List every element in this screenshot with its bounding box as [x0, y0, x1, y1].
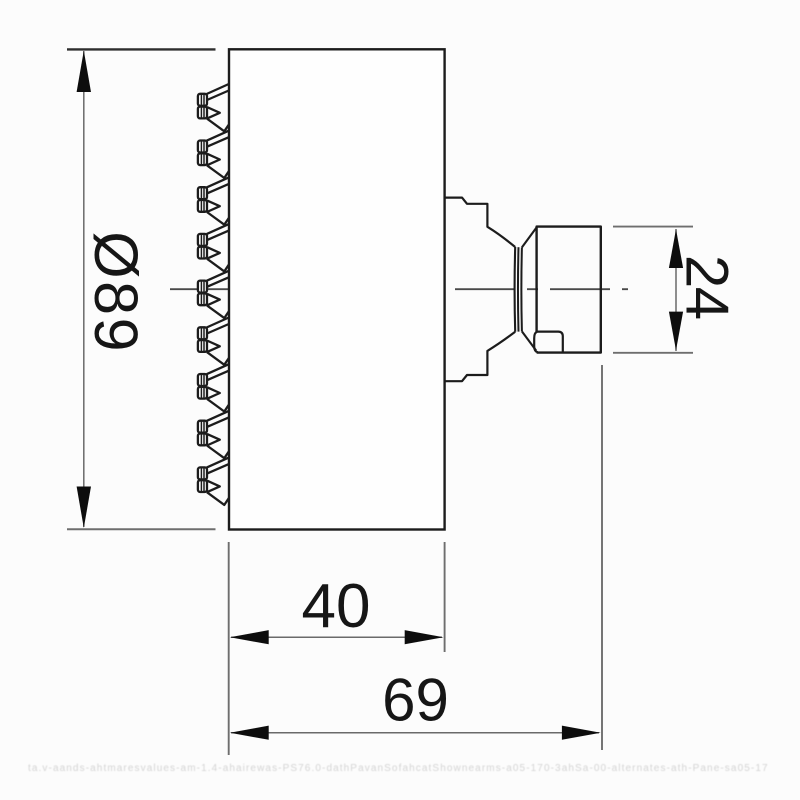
svg-text:40: 40 — [302, 572, 371, 641]
svg-text:ta.v-aands-ahtmaresvalues-am-1: ta.v-aands-ahtmaresvalues-am-1.4-ahairew… — [28, 763, 769, 774]
svg-text:24: 24 — [674, 255, 741, 319]
svg-text:Ø89: Ø89 — [82, 231, 150, 354]
svg-text:69: 69 — [382, 667, 449, 734]
